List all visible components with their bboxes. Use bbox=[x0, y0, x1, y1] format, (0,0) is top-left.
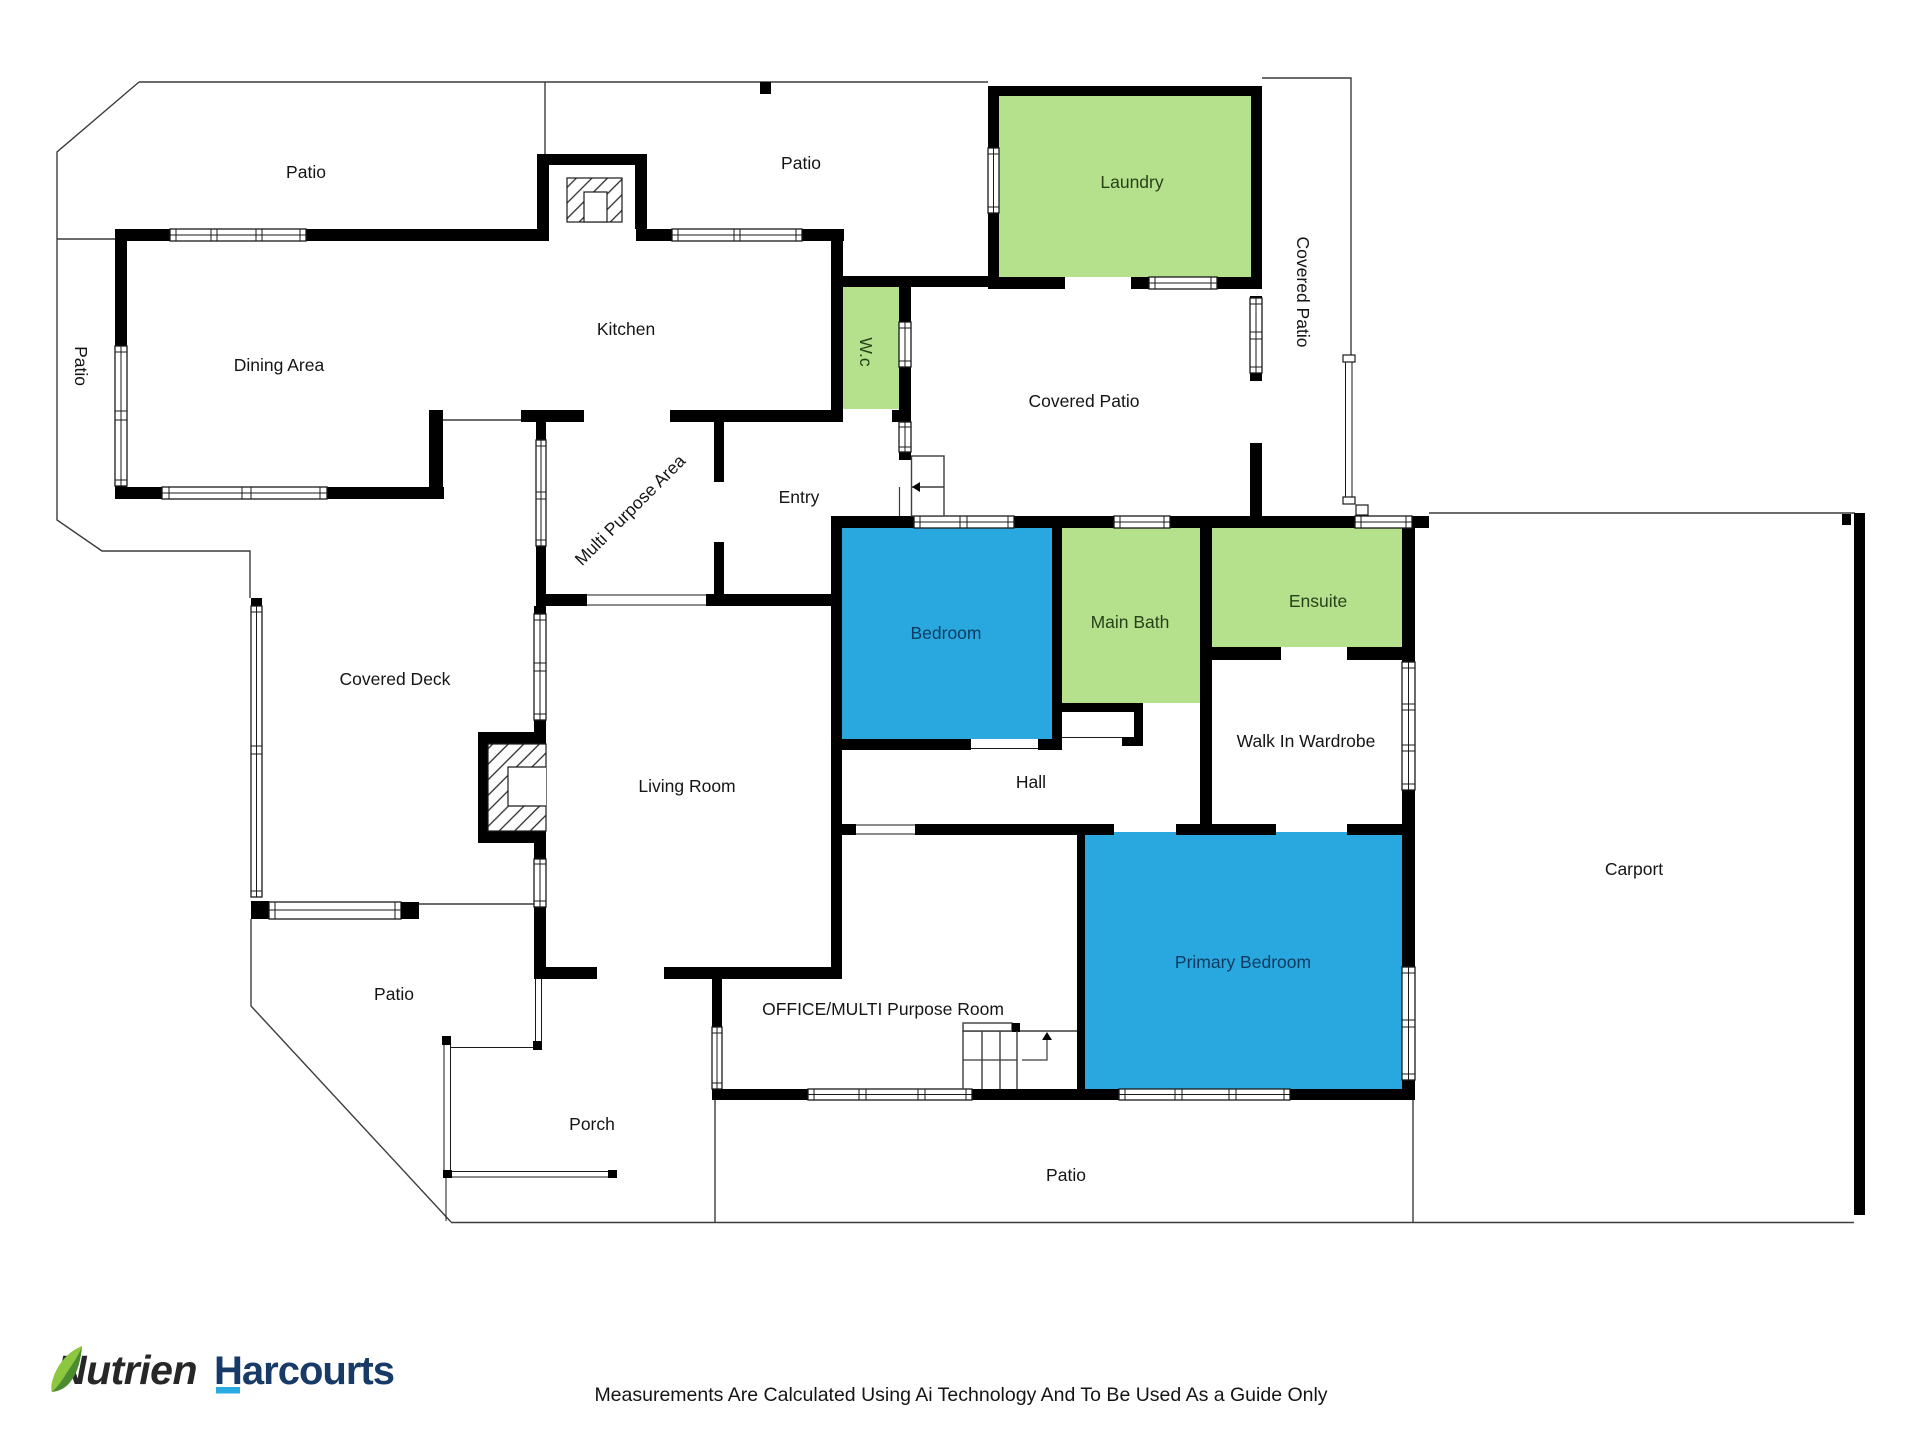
svg-text:Patio: Patio bbox=[781, 153, 821, 173]
svg-text:Living Room: Living Room bbox=[638, 776, 735, 796]
svg-text:Porch: Porch bbox=[569, 1114, 615, 1134]
svg-text:Covered Patio: Covered Patio bbox=[1029, 391, 1140, 411]
svg-text:Covered Patio: Covered Patio bbox=[1293, 237, 1313, 348]
svg-text:Kitchen: Kitchen bbox=[597, 319, 655, 339]
svg-text:Patio: Patio bbox=[374, 984, 414, 1004]
svg-text:Entry: Entry bbox=[779, 487, 820, 507]
svg-text:Harcourts: Harcourts bbox=[214, 1349, 394, 1393]
svg-text:Ensuite: Ensuite bbox=[1289, 591, 1347, 611]
svg-text:Laundry: Laundry bbox=[1100, 172, 1163, 192]
svg-text:Main Bath: Main Bath bbox=[1091, 612, 1170, 632]
svg-text:Walk In Wardrobe: Walk In Wardrobe bbox=[1237, 731, 1376, 751]
svg-text:Hall: Hall bbox=[1016, 772, 1046, 792]
svg-text:Patio: Patio bbox=[286, 162, 326, 182]
svg-text:W.c: W.c bbox=[856, 337, 876, 366]
svg-text:Dining Area: Dining Area bbox=[234, 355, 325, 375]
svg-text:OFFICE/MULTI Purpose Room: OFFICE/MULTI Purpose Room bbox=[762, 999, 1004, 1019]
svg-text:Patio: Patio bbox=[71, 346, 91, 386]
svg-text:Carport: Carport bbox=[1605, 859, 1663, 879]
svg-text:Covered Deck: Covered Deck bbox=[340, 669, 451, 689]
svg-text:Primary Bedroom: Primary Bedroom bbox=[1175, 952, 1311, 972]
svg-text:Bedroom: Bedroom bbox=[910, 623, 981, 643]
svg-text:Patio: Patio bbox=[1046, 1165, 1086, 1185]
svg-text:Measurements Are Calculated Us: Measurements Are Calculated Using Ai Tec… bbox=[594, 1384, 1327, 1406]
